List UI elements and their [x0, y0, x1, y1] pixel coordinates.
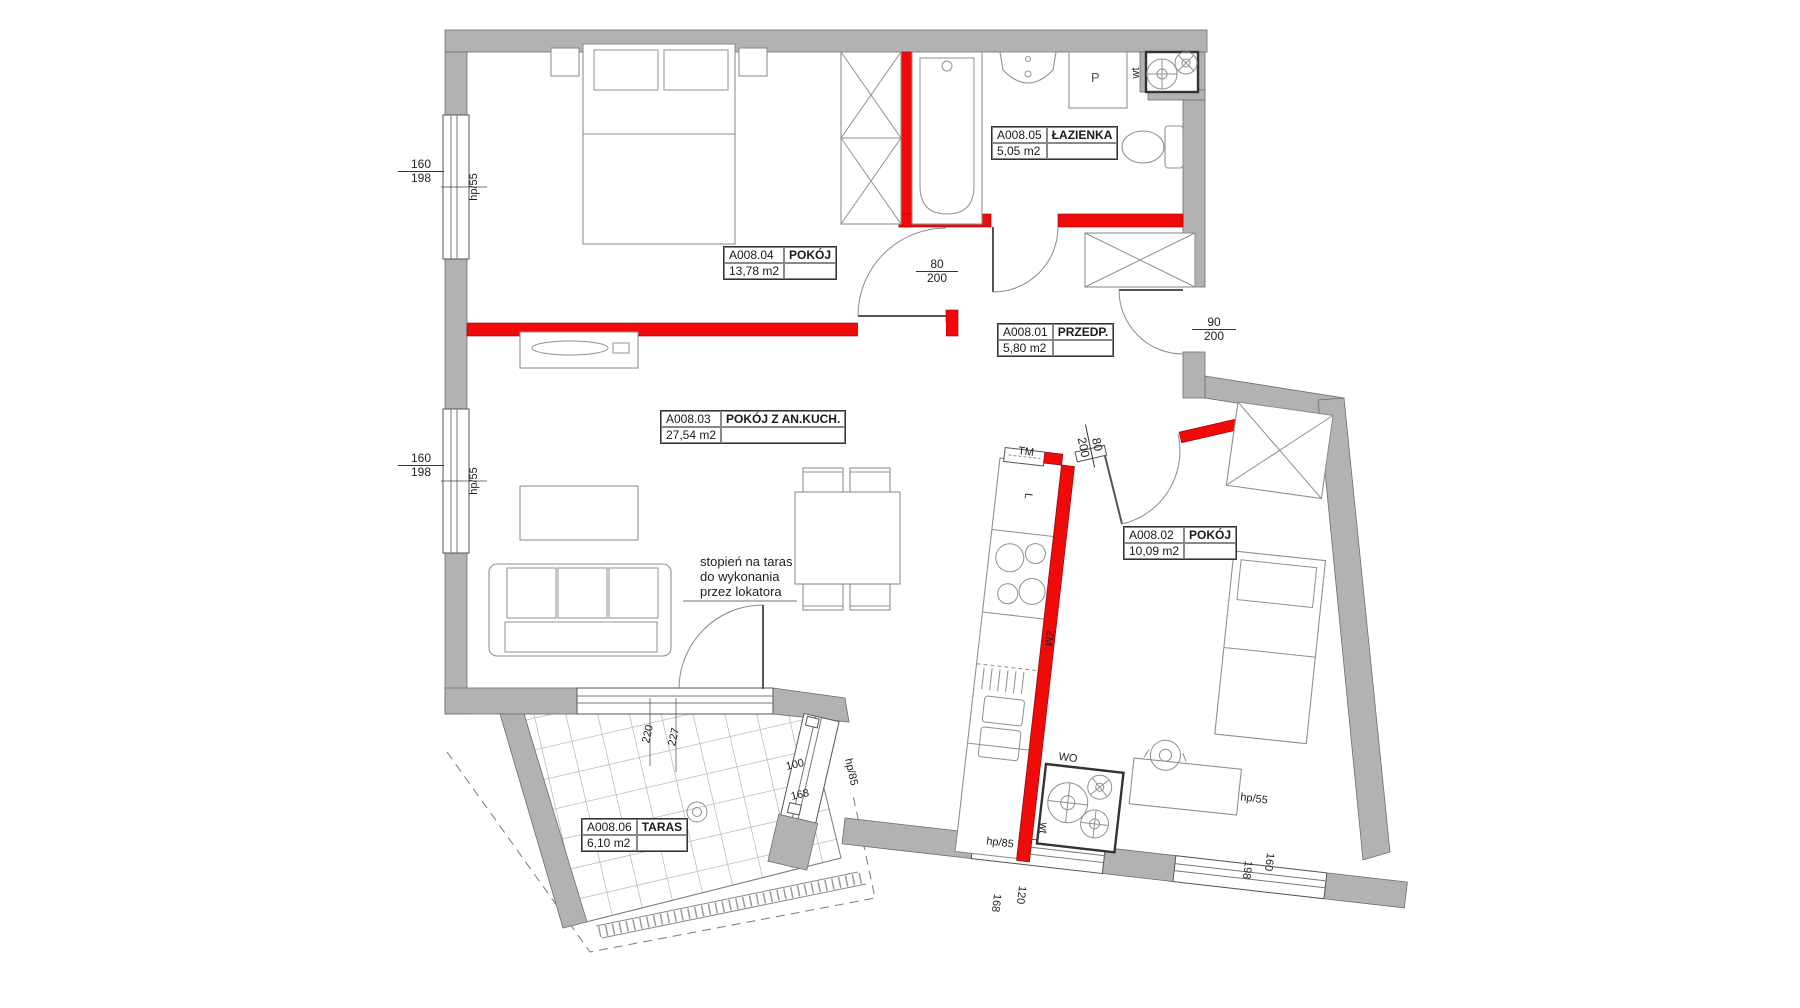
red-wall-stub — [946, 310, 958, 336]
dim-bottom-h: 168 — [989, 893, 1003, 913]
room-label-A008.04: A008.04 POKÓJ 13,78 m2 — [723, 246, 837, 280]
room-label-A008.05: A008.05 ŁAZIENKA 5,05 m2 — [991, 126, 1118, 160]
dim-window-left-bottom: 160 198 — [398, 452, 444, 479]
wardrobe2-icon — [1226, 402, 1333, 499]
room-area: 5,05 m2 — [992, 143, 1047, 159]
room-code: A008.02 — [1124, 527, 1184, 543]
room-label-A008.02: A008.02 POKÓJ 10,09 m2 — [1123, 526, 1237, 560]
coffee-table-icon — [520, 486, 638, 540]
room-label-A008.03: A008.03 POKÓJ Z AN.KUCH. 27,54 m2 — [660, 410, 846, 444]
room-area: 10,09 m2 — [1124, 543, 1184, 559]
sofa-icon — [489, 564, 671, 656]
floor-plan: A008.04 POKÓJ 13,78 m2 A008.05 ŁAZIENKA … — [0, 0, 1800, 1008]
dim-bottom-w: 120 — [1014, 885, 1028, 905]
wardrobe-icon — [841, 52, 901, 224]
room-code: A008.03 — [661, 411, 721, 427]
hall-wardrobe-icon — [1085, 233, 1195, 287]
window-left-bottom — [441, 409, 487, 553]
terrace-step-note: stopień na taras do wykonania przez loka… — [700, 554, 793, 599]
dishwasher-label: ZM — [1042, 629, 1056, 646]
fridge-label: L — [1022, 492, 1035, 500]
dim-bottom-right-h: 160 — [1262, 852, 1276, 872]
wall-terrace-left — [500, 714, 587, 928]
doors — [679, 227, 1207, 689]
room-area: 27,54 m2 — [661, 427, 721, 443]
dim-window-left-top: 160 198 — [398, 158, 444, 185]
door-room02 — [1104, 434, 1180, 524]
room-code: A008.04 — [724, 247, 784, 263]
room02-furniture — [1129, 402, 1333, 815]
room-name: POKÓJ Z AN.KUCH. — [721, 411, 845, 427]
room-area: 5,80 m2 — [998, 340, 1053, 356]
desk-icon — [1129, 737, 1243, 815]
red-wall-hall-top — [1058, 214, 1183, 227]
room-name: PRZEDP. — [1053, 324, 1113, 340]
window-left-top — [441, 115, 487, 259]
dim-door-entry: 90 200 — [1192, 316, 1236, 343]
room-area: 6,10 m2 — [582, 835, 637, 851]
red-wall-room02-stub — [1179, 419, 1238, 443]
dining-set-icon — [795, 468, 900, 610]
dim-sill-left-bottom: hp/55 — [468, 467, 480, 495]
terrace-drain-icon — [687, 802, 707, 822]
wall-left-2 — [445, 259, 467, 409]
wall-entry-stub — [1183, 352, 1205, 398]
room-name: TARAS — [637, 819, 687, 835]
vent-shaft-top-icon — [1146, 52, 1198, 92]
room-name: ŁAZIENKA — [1047, 127, 1118, 143]
single-bed-icon — [1215, 551, 1326, 744]
door-bathroom — [993, 227, 1058, 292]
washing-machine-label: P — [1091, 70, 1100, 85]
living-furniture — [489, 332, 900, 656]
nightstand-icon — [739, 48, 767, 76]
bedroom-furniture — [551, 44, 901, 244]
dim-sill-left-top: hp/55 — [468, 173, 480, 201]
wall-left-1 — [445, 52, 467, 115]
room-label-A008.01: A008.01 PRZEDP. 5,80 m2 — [997, 323, 1114, 357]
bathtub-icon — [912, 52, 982, 224]
washbasin-icon — [1000, 52, 1056, 83]
room-name: POKÓJ — [784, 247, 836, 263]
room-code: A008.05 — [992, 127, 1047, 143]
room-code: A008.01 — [998, 324, 1053, 340]
wall-bottom-left — [445, 688, 577, 714]
vent-top-label: wt — [1130, 68, 1142, 79]
nightstand-icon — [551, 48, 579, 76]
door-terrace-swing — [679, 605, 763, 689]
dim-door-room04: 80 200 — [916, 258, 958, 285]
water-meter-label: WO — [1058, 751, 1078, 765]
vent-bottom-label: wt — [1036, 822, 1049, 834]
room-area: 13,78 m2 — [724, 263, 784, 279]
dim-bottom-right-w: 198 — [1240, 860, 1254, 880]
toilet-icon — [1122, 126, 1183, 168]
room-label-A008.06: A008.06 TARAS 6,10 m2 — [581, 818, 688, 852]
wall-right-lower — [1318, 398, 1390, 860]
meter-box-label: TM — [1017, 445, 1034, 459]
wall-bottom-band — [842, 818, 1407, 908]
tv-cabinet-icon — [520, 332, 638, 368]
floor-plan-drawing — [0, 0, 1800, 1008]
room-name: POKÓJ — [1184, 527, 1236, 543]
room-code: A008.06 — [582, 819, 637, 835]
dining-table-icon — [795, 492, 900, 584]
vent-shaft-bottom-icon — [1037, 764, 1124, 852]
double-bed-icon — [583, 44, 735, 244]
